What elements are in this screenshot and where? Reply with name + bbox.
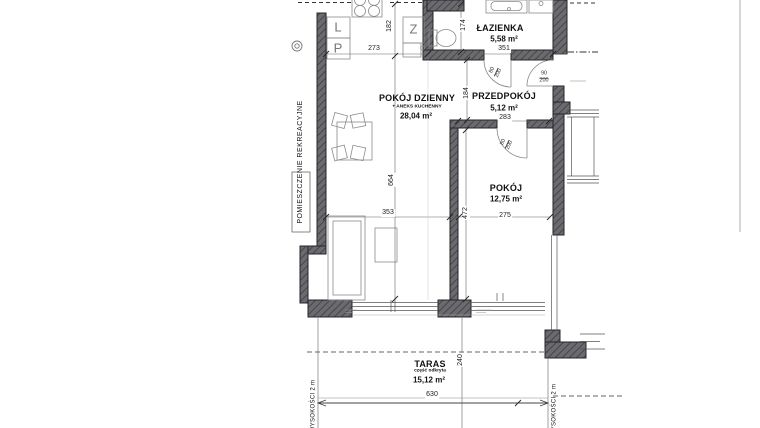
sofa-symbol xyxy=(328,216,365,300)
dim-kitchen-width: 273 xyxy=(367,45,381,53)
floor-plan: ŁAZIENKA 5,58 m² PRZEDPOKÓJ 5,12 m² POKÓ… xyxy=(0,0,760,428)
dashed-lines-layer xyxy=(298,3,622,397)
height-line-label-right: WYSOKOŚCI 2 m xyxy=(552,384,559,428)
height-line-label-left: WYSOKOŚCI 2 m xyxy=(310,380,317,428)
dim-kitchen-depth: 182 xyxy=(386,19,394,33)
room-area-pokoj: 12,75 m² xyxy=(490,194,522,203)
dim-bathroom-width: 351 xyxy=(497,45,511,53)
dim-room-width: 275 xyxy=(498,211,512,219)
floorplan-drawing xyxy=(0,0,760,428)
room-label-pokoj: POKÓJ xyxy=(490,183,523,193)
dim-living-depth: 664 xyxy=(388,173,396,187)
fridge-symbol-letter: L xyxy=(334,20,341,35)
room-area-przedpokoj: 5,12 m² xyxy=(490,103,518,112)
dim-terrace-width: 630 xyxy=(425,390,439,398)
dim-hall-width: 283 xyxy=(498,113,512,121)
washer-symbol-letter: P xyxy=(334,41,343,56)
room-subtitle-pokoj-dzienny: + ANEKS KUCHENNY xyxy=(392,104,441,110)
target-circle-icon xyxy=(292,41,302,51)
room-area-lazienka: 5,58 m² xyxy=(490,34,518,43)
door-size-hall: 90200 xyxy=(539,72,548,85)
dim-terrace-depth: 240 xyxy=(457,353,465,367)
dim-hall-depth: 184 xyxy=(463,86,471,100)
dining-table-symbol xyxy=(332,113,372,161)
dim-living-width: 353 xyxy=(381,208,395,216)
room-label-przedpokoj: PRZEDPOKÓJ xyxy=(472,91,536,101)
room-label-pokoj-dzienny: POKÓJ DZIENNY xyxy=(379,93,455,103)
room-area-pokoj-dzienny: 28,04 m² xyxy=(400,111,432,120)
room-label-lazienka: ŁAZIENKA xyxy=(476,23,523,33)
recreation-room-label: POMIESZCZENIE REKREACYJNE xyxy=(297,100,305,223)
sink-symbol-letter: Z xyxy=(410,23,418,38)
counter-segment xyxy=(403,43,421,57)
windows-layer xyxy=(345,110,605,349)
room-subtitle-taras: część odkryta xyxy=(414,368,446,374)
counter-right xyxy=(529,0,553,13)
dim-room-depth: 472 xyxy=(462,206,470,220)
room-area-taras: 15,12 m² xyxy=(413,375,445,384)
stove-symbol xyxy=(352,0,382,17)
dim-bathroom-side: 174 xyxy=(460,18,468,32)
coffee-table-symbol xyxy=(375,228,397,262)
washbasin-symbol xyxy=(486,0,527,13)
furniture-layer xyxy=(328,113,397,300)
